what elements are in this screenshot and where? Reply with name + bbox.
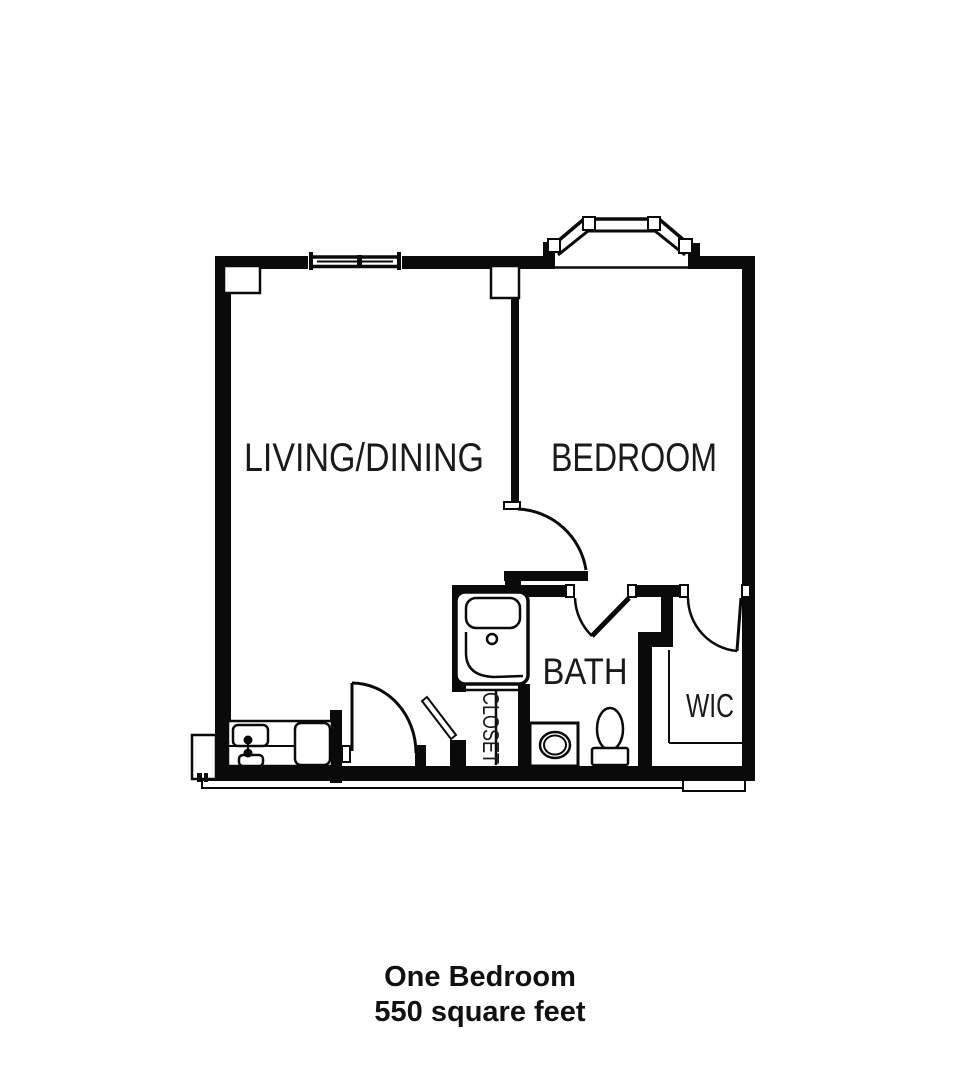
toilet-bowl bbox=[597, 708, 623, 750]
threshold-strip-right bbox=[683, 780, 745, 791]
wic-door-swing-arc bbox=[688, 598, 737, 651]
counter-appliance bbox=[239, 755, 263, 766]
room-label-living: LIVING/DINING bbox=[244, 436, 484, 480]
hall-door-swing-arc bbox=[518, 509, 586, 570]
bay-joint bbox=[648, 217, 660, 230]
kitchenette bbox=[228, 721, 332, 766]
caption-title: One Bedroom bbox=[0, 960, 960, 995]
bath-right-wall bbox=[638, 647, 652, 766]
sink-bowl-inner bbox=[544, 736, 566, 755]
closet-divider-wall bbox=[518, 684, 530, 766]
bath-door-leaf bbox=[592, 598, 629, 636]
caption-area: 550 square feet bbox=[0, 995, 960, 1030]
bay-joint bbox=[583, 217, 595, 230]
room-label-bedroom: BEDROOM bbox=[551, 436, 717, 480]
counter-appliance bbox=[295, 723, 330, 765]
window-mullion bbox=[357, 255, 362, 268]
window bbox=[308, 252, 402, 270]
step-tick bbox=[204, 773, 208, 782]
exterior-step bbox=[192, 735, 216, 779]
wall-notches bbox=[224, 266, 750, 762]
closet-left-wall bbox=[450, 740, 466, 767]
room-label-wic: WIC bbox=[686, 687, 734, 724]
faucet-knob bbox=[244, 736, 253, 745]
bathtub-drain bbox=[487, 634, 497, 644]
threshold-strip-left bbox=[202, 780, 683, 788]
step-tick bbox=[197, 773, 202, 782]
closet-door-leaf bbox=[422, 697, 456, 739]
door-jamb bbox=[628, 585, 636, 597]
corner-column-notch bbox=[224, 266, 260, 293]
bath-wic-wall bbox=[636, 585, 680, 597]
door-jamb bbox=[680, 585, 688, 597]
bedroom-divider-wall bbox=[511, 297, 519, 503]
faucet-knob bbox=[244, 749, 253, 758]
divider-wall-cap bbox=[504, 502, 520, 509]
room-label-bath: BATH bbox=[543, 651, 628, 692]
plan-caption: One Bedroom 550 square feet bbox=[0, 960, 960, 1030]
bathtub-seat bbox=[466, 598, 520, 628]
bay-joint bbox=[679, 239, 692, 253]
bath-door-swing-arc bbox=[575, 598, 592, 636]
window-end-cap bbox=[397, 252, 401, 270]
door-jamb bbox=[742, 585, 750, 597]
hall-door-leaf bbox=[504, 571, 588, 581]
doors bbox=[352, 509, 741, 753]
floor-plan: LIVING/DINING BEDROOM BATH WIC CLOSET bbox=[0, 0, 960, 1080]
right-wall bbox=[742, 256, 755, 781]
door-jamb bbox=[342, 746, 350, 762]
top-wall-segment bbox=[400, 256, 543, 269]
wic-wall-step bbox=[638, 632, 673, 647]
room-label-closet: CLOSET bbox=[478, 692, 504, 764]
entry-door-swing-arc bbox=[352, 683, 416, 753]
left-wall bbox=[215, 256, 231, 781]
toilet-tank bbox=[592, 748, 628, 765]
bottom-wall bbox=[215, 766, 755, 781]
wic-door-leaf bbox=[737, 598, 741, 651]
bay-window bbox=[548, 217, 692, 269]
bay-joint bbox=[548, 239, 560, 252]
window-end-cap bbox=[309, 252, 313, 270]
divider-column-notch bbox=[491, 266, 519, 298]
door-jamb bbox=[566, 585, 574, 597]
